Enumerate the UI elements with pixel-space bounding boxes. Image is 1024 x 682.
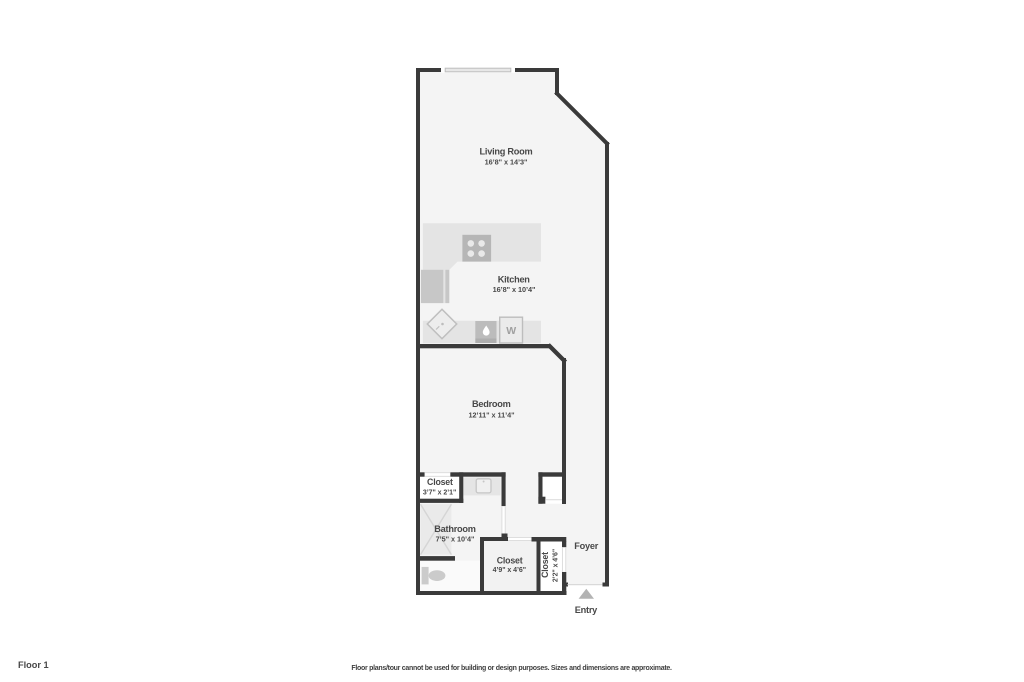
svg-text:16’8" x 10’4": 16’8" x 10’4" [493,285,536,294]
svg-text:4’9" x 4’6": 4’9" x 4’6" [493,567,526,574]
svg-text:Foyer: Foyer [574,541,598,551]
svg-text:Living Room: Living Room [480,147,533,157]
svg-text:Floor 1: Floor 1 [18,660,49,670]
svg-text:Entry: Entry [575,605,598,615]
svg-text:Floor plans/tour cannot be use: Floor plans/tour cannot be used for buil… [351,665,672,672]
svg-text:7’5" x 10’4": 7’5" x 10’4" [436,535,475,544]
svg-text:Closet: Closet [540,552,550,578]
svg-text:Kitchen: Kitchen [498,275,531,285]
svg-text:2’2" x 4’6": 2’2" x 4’6" [552,549,559,582]
svg-text:Closet: Closet [427,477,453,487]
svg-text:W: W [506,325,516,337]
svg-text:3’7" x 2’1": 3’7" x 2’1" [423,490,456,497]
svg-text:16’8" x 14’3": 16’8" x 14’3" [485,158,528,167]
svg-text:Bathroom: Bathroom [434,524,475,534]
svg-text:Closet: Closet [497,555,523,565]
svg-text:Bedroom: Bedroom [472,399,511,409]
svg-text:12’11" x 11’4": 12’11" x 11’4" [469,410,515,419]
